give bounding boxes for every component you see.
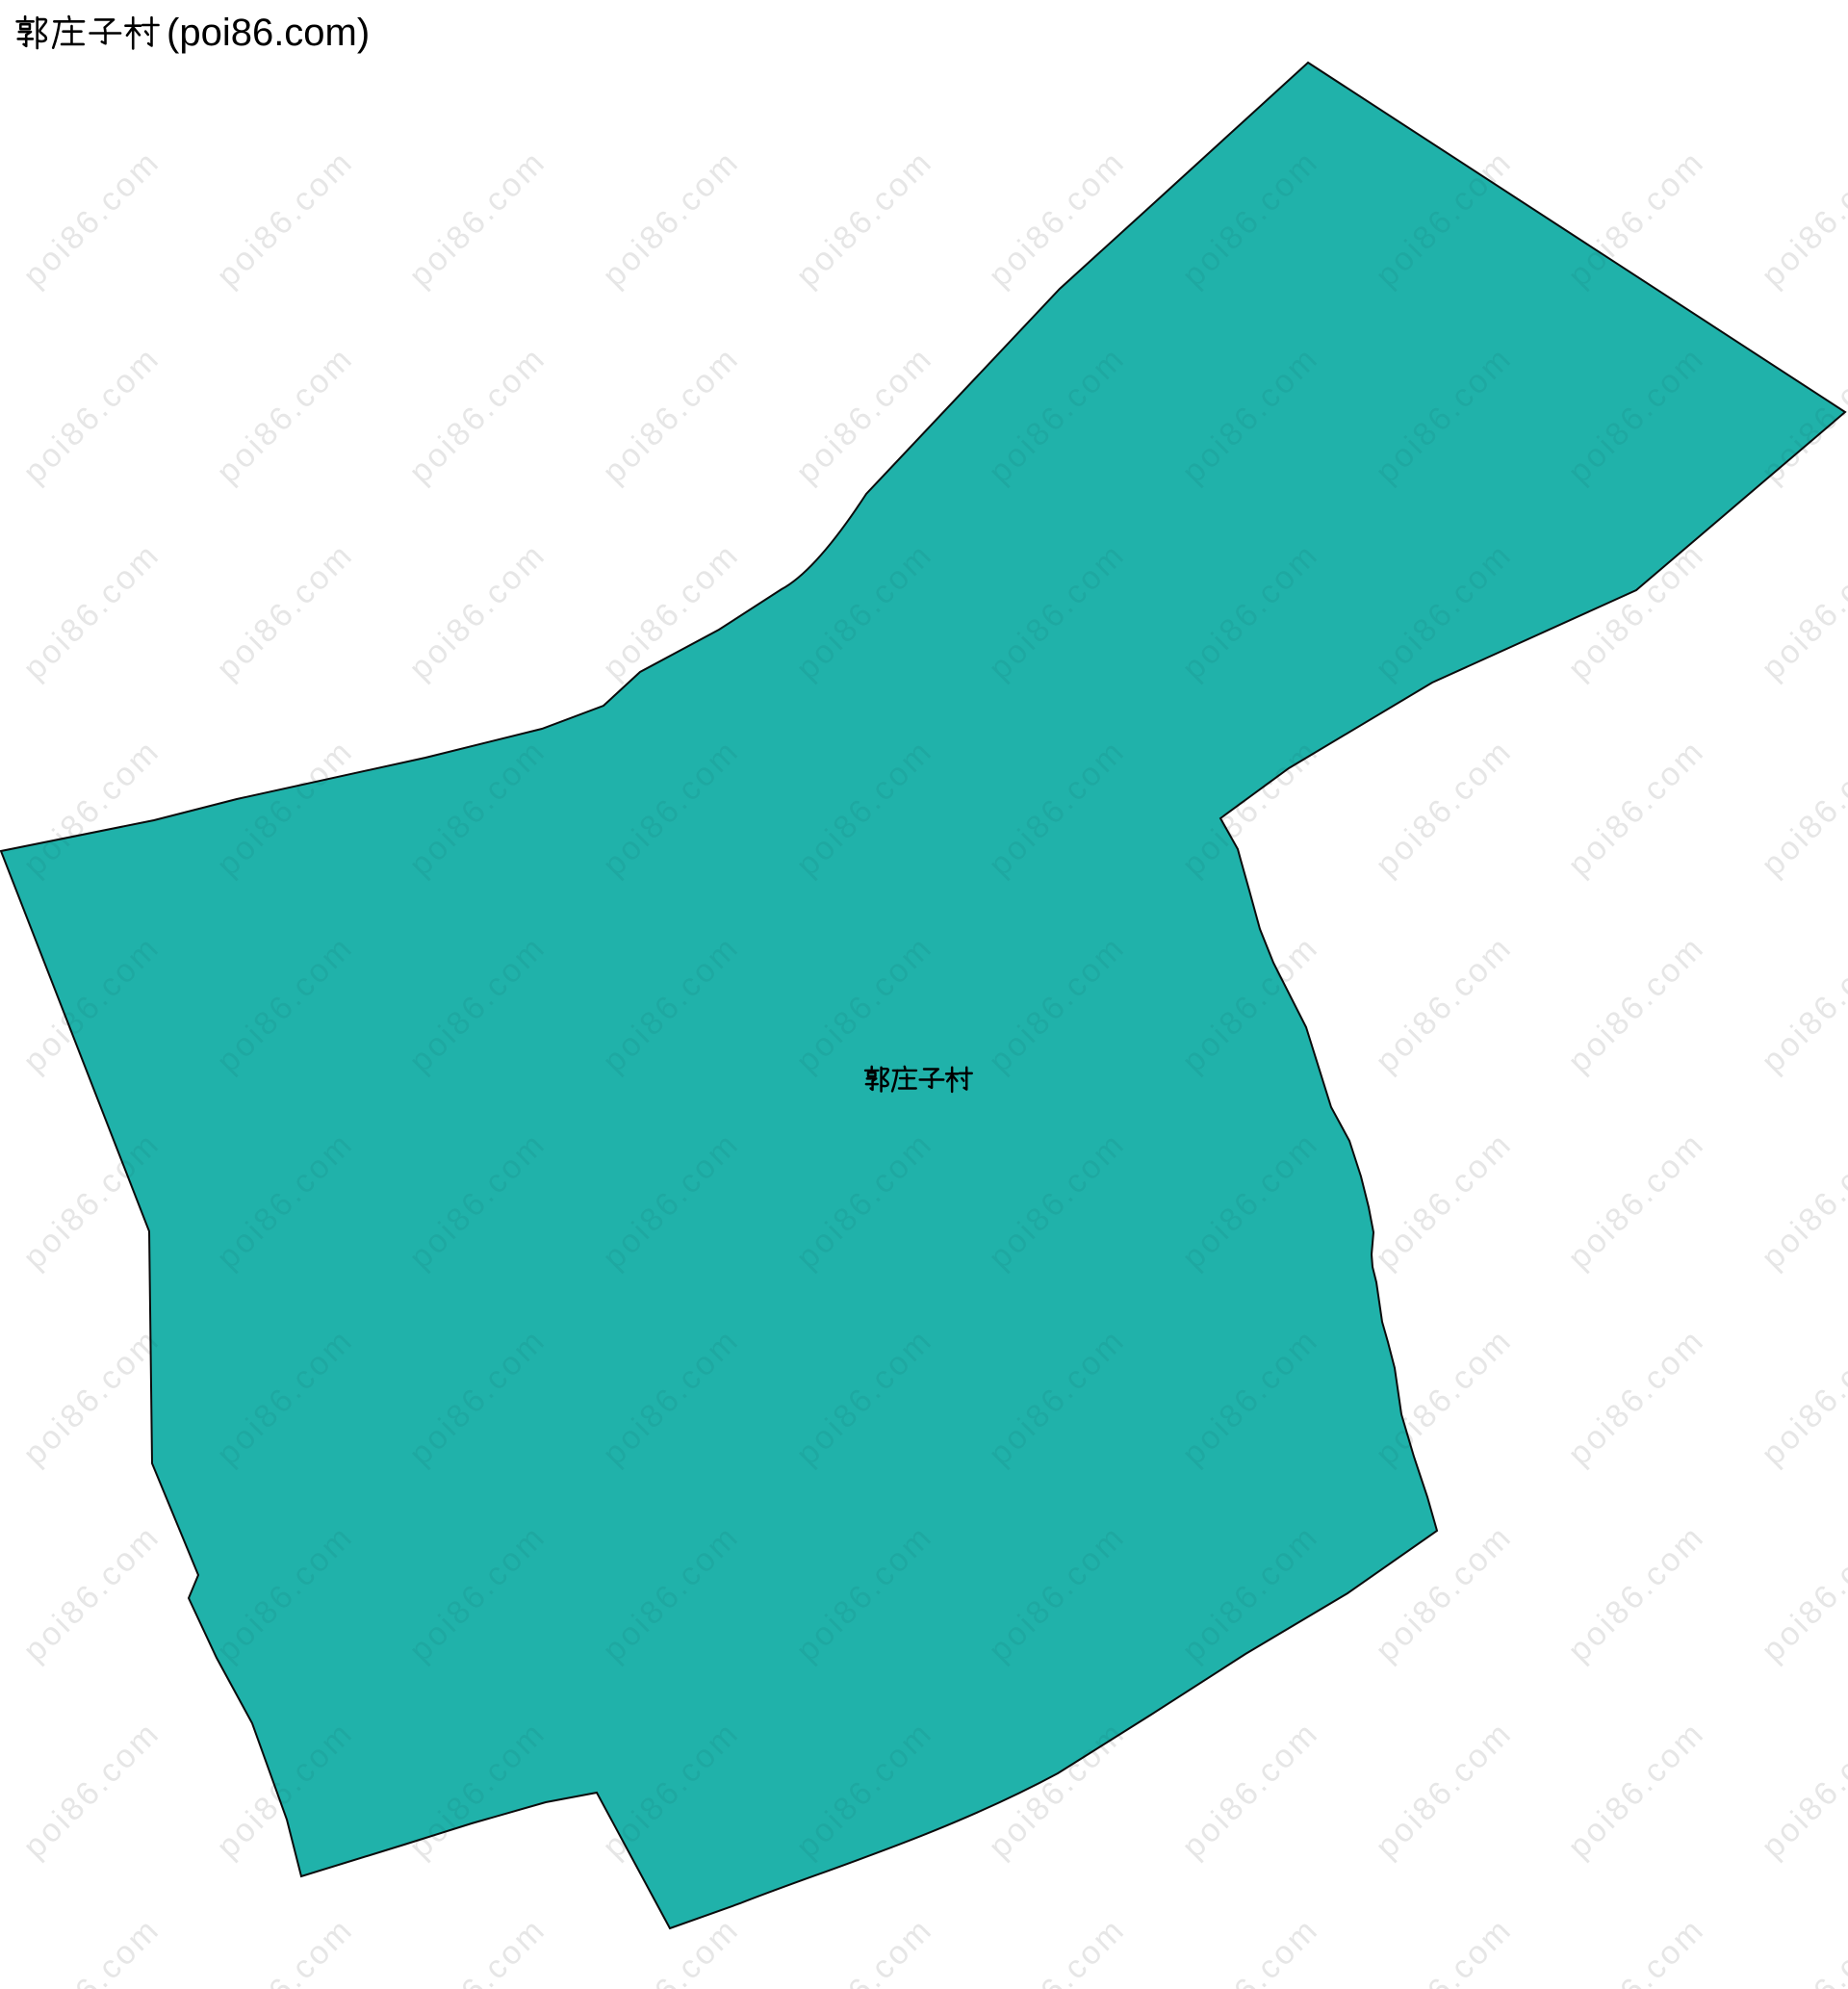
svg-text:(poi86.com): (poi86.com) — [167, 12, 370, 54]
